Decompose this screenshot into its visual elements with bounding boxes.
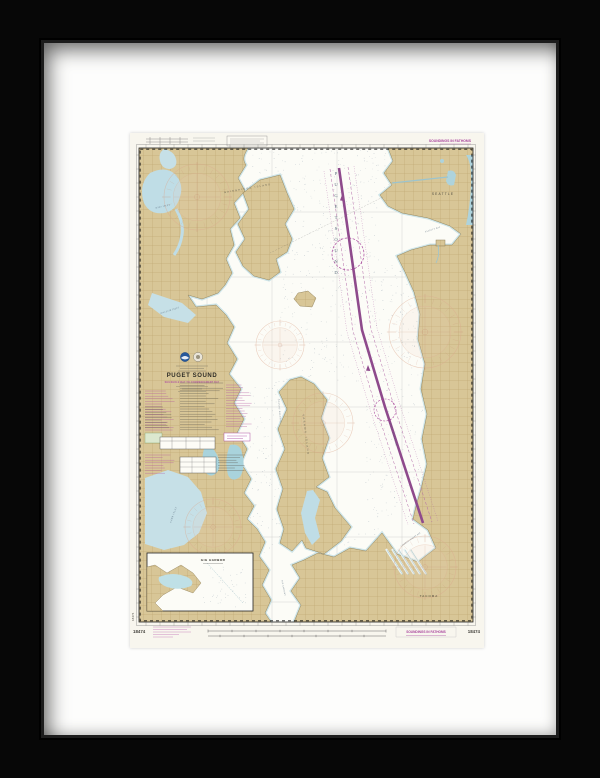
lake (226, 445, 243, 480)
note-table-2 (180, 457, 216, 473)
harbor-island (436, 240, 445, 246)
tide-table (160, 437, 215, 449)
print-stamp (153, 627, 191, 637)
chart-title: PUGET SOUND (167, 373, 218, 379)
soundings-note-bottom: SOUNDINGS IN FATHOMS (406, 630, 446, 634)
map-label: TACOMA (420, 594, 439, 598)
green-lake (440, 159, 444, 163)
graphic-scale-bars (208, 630, 386, 638)
soundings-note-top: SOUNDINGS IN FATHOMS (429, 139, 472, 143)
green-note-box (145, 433, 162, 443)
puget-sound-chart: SOUNDINGS IN FATHOMS (130, 133, 484, 648)
chart-subtitle: SHILSHOLE BAY TO COMMENCEMENT BAY (165, 381, 220, 384)
chart-number-left-vertical: 18474 (131, 612, 135, 621)
magenta-stamp-box (224, 433, 250, 441)
gig-harbor-inset: GIG HARBOR (147, 553, 253, 611)
map-label: SEATTLE (432, 192, 454, 196)
chart-number-bottom-right: 18474 (468, 629, 481, 634)
chart-paper: SOUNDINGS IN FATHOMS (130, 133, 484, 648)
mat-board: SOUNDINGS IN FATHOMS (44, 43, 556, 735)
commerce-seal-center (196, 355, 200, 359)
chart-number-bottom-left: 18474 (133, 629, 146, 634)
framed-nautical-chart-photo: SOUNDINGS IN FATHOMS (0, 0, 600, 778)
inset-title: GIG HARBOR (201, 558, 226, 562)
